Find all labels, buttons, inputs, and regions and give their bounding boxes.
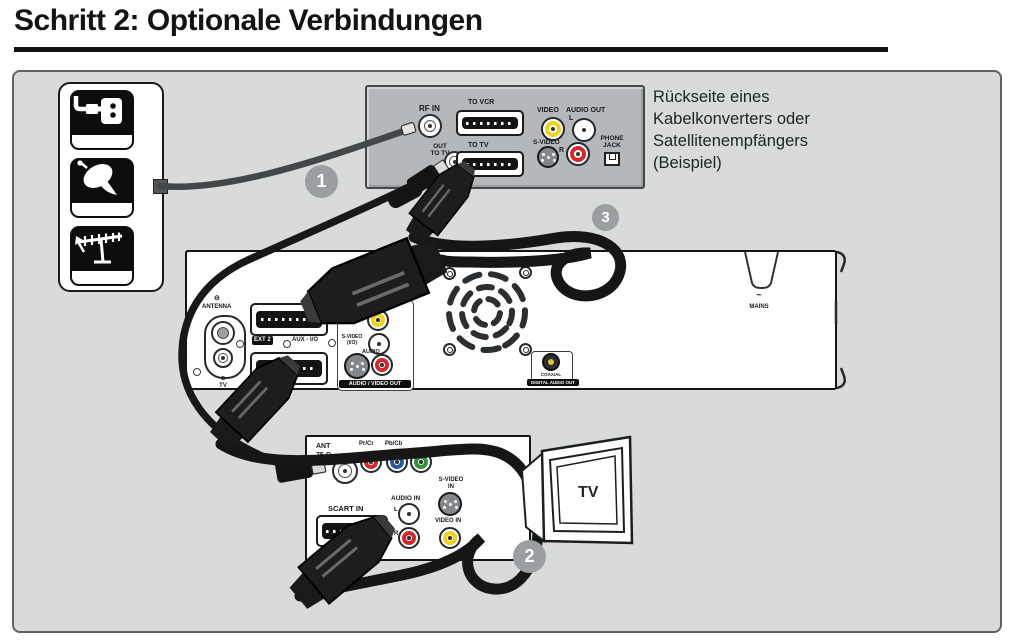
scart-in-socket bbox=[316, 515, 388, 547]
audio-l-jack bbox=[572, 118, 596, 142]
rooftop-antenna-icon bbox=[70, 226, 134, 286]
screw bbox=[328, 339, 336, 347]
page-title: Schritt 2: Optionale Verbindungen bbox=[14, 4, 483, 38]
caption-line: (Beispiel) bbox=[653, 152, 810, 174]
ant-connector bbox=[332, 458, 358, 484]
audio-in-label: AUDIO IN bbox=[391, 495, 420, 502]
antenna-in-symbol: ⊖ bbox=[214, 295, 220, 303]
ant-ohm-label: 75 Ω bbox=[316, 452, 331, 460]
component-video-in-label: VIDEO IN bbox=[437, 448, 463, 455]
audio-r-out-jack bbox=[371, 354, 393, 376]
s-video-io-connector bbox=[344, 353, 370, 379]
caption: Rückseite eines Kabelkonverters oder Sat… bbox=[653, 86, 810, 174]
step-badge-2: 2 bbox=[513, 540, 546, 573]
screw bbox=[283, 340, 291, 348]
mains-text: MAINS bbox=[749, 304, 768, 310]
icon-strip bbox=[72, 135, 132, 148]
s-video-in-label: S-VIDEO IN bbox=[436, 477, 466, 490]
cable-exit-stub bbox=[153, 179, 168, 194]
ext1-scart-socket bbox=[250, 352, 328, 385]
scart-in-label: SCART IN bbox=[328, 505, 363, 513]
icon-strip bbox=[72, 271, 132, 284]
to-vcr-label: TO VCR bbox=[468, 99, 494, 107]
screw bbox=[193, 368, 201, 376]
s-video-io-label: S-VIDEO (I/O) bbox=[338, 335, 366, 346]
video-out-jack bbox=[541, 117, 565, 141]
title-rule bbox=[14, 47, 888, 52]
video-cvbs-jack bbox=[367, 309, 389, 331]
ext2-badge: EXT 2 bbox=[252, 336, 273, 345]
rf-in-label: RF IN bbox=[419, 105, 440, 114]
cable-wall-socket-icon bbox=[70, 90, 134, 150]
mains-label: ~ MAINS bbox=[742, 290, 776, 311]
audio-r-label: R bbox=[559, 147, 564, 155]
audio-r-jack bbox=[566, 142, 590, 166]
icon-strip bbox=[72, 203, 132, 216]
caption-line: Rückseite eines bbox=[653, 86, 810, 108]
s-video-connector bbox=[537, 146, 559, 168]
video-in-label: VIDEO IN bbox=[435, 518, 461, 525]
caption-line: Satellitenempfängers bbox=[653, 130, 810, 152]
antenna-label: ANTENNA bbox=[202, 304, 231, 311]
audio-in-r-jack bbox=[398, 527, 420, 549]
ext2-scart-socket bbox=[250, 303, 328, 336]
pr-label: Pr/Cr bbox=[359, 441, 374, 448]
manual-page: Schritt 2: Optionale Verbindungen bbox=[0, 0, 1012, 642]
mains-symbol: ~ bbox=[756, 290, 761, 300]
rf-in-connector bbox=[418, 114, 442, 138]
pb-jack bbox=[386, 451, 408, 473]
y-jack bbox=[410, 451, 432, 473]
screw bbox=[236, 340, 244, 348]
aux-io-label: AUX - I/O bbox=[292, 337, 318, 344]
to-tv-label: TO TV bbox=[468, 142, 488, 150]
to-vcr-scart-socket bbox=[456, 110, 524, 136]
coaxial-jack bbox=[542, 353, 560, 371]
phone-jack-label: PHONE JACK bbox=[598, 135, 626, 150]
tv-out-symbol: ⊖ bbox=[220, 376, 225, 382]
pb-label: Pb/Cb bbox=[385, 441, 402, 448]
audio-in-l-jack bbox=[398, 503, 420, 525]
satellite-dish-icon bbox=[70, 158, 134, 218]
to-tv-scart-socket bbox=[456, 151, 524, 177]
cooling-fan bbox=[437, 262, 537, 362]
video-label: VIDEO bbox=[537, 107, 559, 115]
pr-jack bbox=[360, 451, 382, 473]
coaxial-label: COAXIAL bbox=[533, 372, 569, 377]
digital-audio-out-badge: DIGITAL AUDIO OUT bbox=[527, 379, 579, 386]
audio-out-label: AUDIO OUT bbox=[566, 107, 605, 115]
ant-label: ANT bbox=[316, 443, 330, 451]
video-in-jack bbox=[439, 527, 461, 549]
step-badge-1: 1 bbox=[305, 165, 338, 198]
audio-l-label: L bbox=[569, 115, 573, 123]
antenna-in-connector bbox=[211, 321, 235, 345]
antenna-tv-label: ⊖ TV bbox=[207, 376, 239, 389]
caption-line: Kabelkonverters oder bbox=[653, 108, 810, 130]
video-cvbs-label: VIDEO (CVBS) bbox=[340, 305, 366, 317]
av-out-badge: AUDIO / VIDEO OUT bbox=[339, 380, 411, 388]
antenna-tv-out-connector bbox=[213, 348, 233, 368]
step-badge-3: 3 bbox=[592, 204, 619, 231]
phone-jack-icon bbox=[604, 152, 620, 166]
tv-out-label: TV bbox=[219, 383, 227, 389]
s-video-in-connector bbox=[438, 492, 462, 516]
